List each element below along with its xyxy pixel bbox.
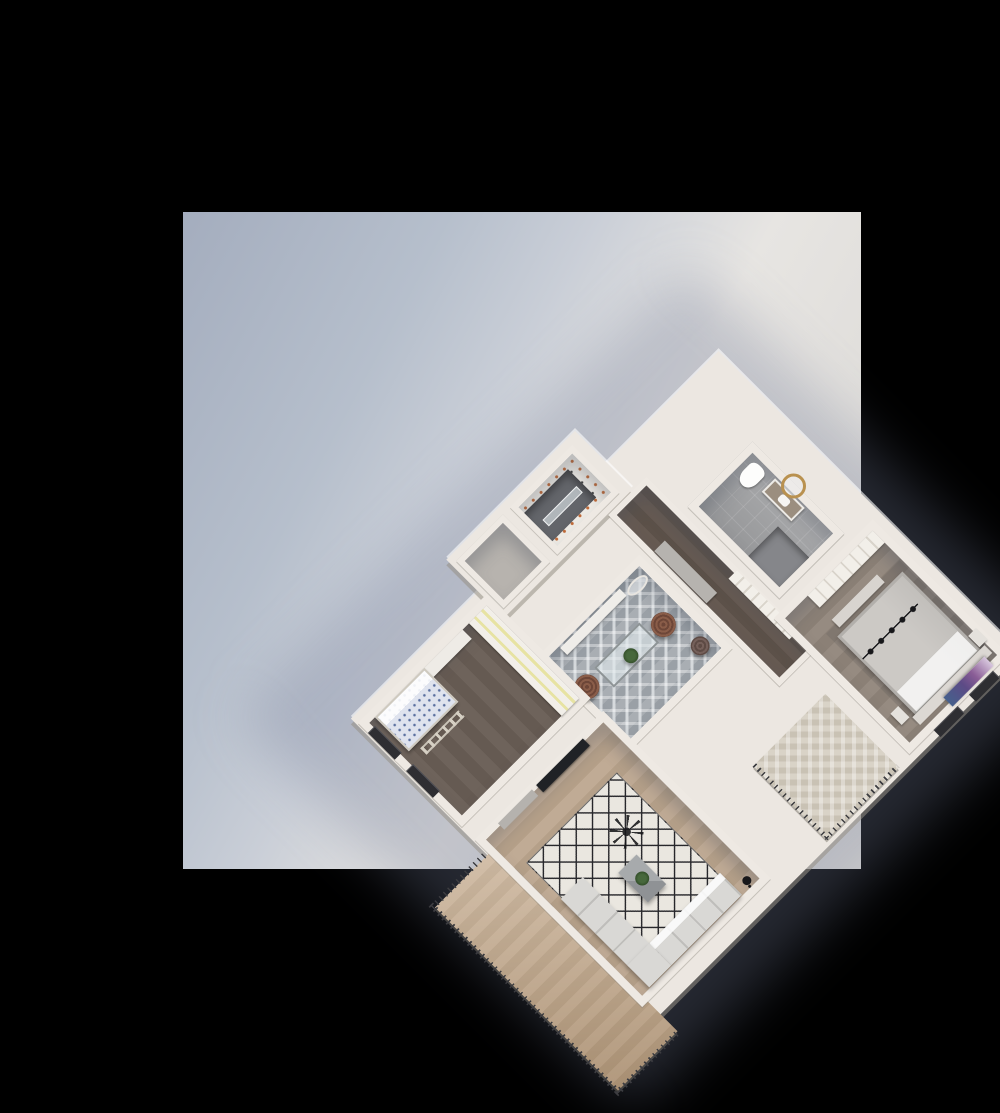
page-frame: { "scene": { "type": "isometric-3d-floor… — [0, 0, 1000, 1000]
render-canvas — [183, 212, 861, 869]
